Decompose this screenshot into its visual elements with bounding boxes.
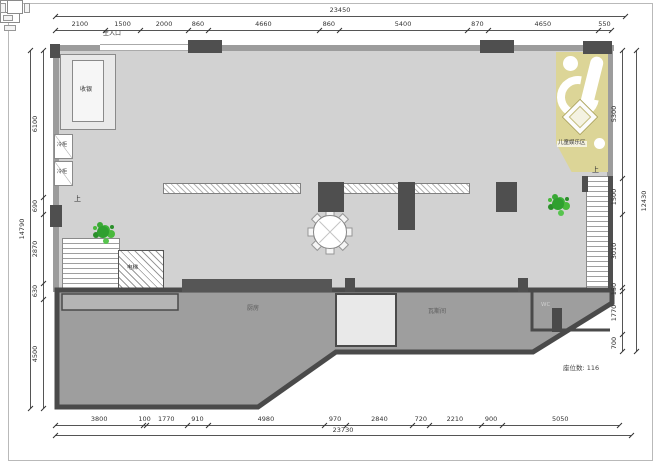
partition-wall bbox=[398, 182, 415, 230]
dimension-label: 3800 bbox=[91, 416, 108, 423]
dimension-label: 1500 bbox=[114, 21, 131, 28]
dimension-label: 3010 bbox=[611, 243, 618, 260]
generated-layer: 2100150020008604660860540087046505502345… bbox=[0, 0, 660, 464]
dimension-total-label: 12430 bbox=[641, 190, 648, 211]
dimension-label: 4650 bbox=[535, 21, 552, 28]
dimension-tick bbox=[629, 432, 635, 438]
dining-table-unit bbox=[0, 62, 20, 93]
dimension-total-label: 23450 bbox=[330, 7, 351, 14]
dining-table-unit bbox=[0, 93, 20, 124]
dimension-label: 970 bbox=[329, 416, 341, 423]
column bbox=[480, 40, 514, 53]
dimension-total-label: 23730 bbox=[333, 427, 354, 434]
dining-table-unit bbox=[0, 31, 20, 62]
dimension-label: 2870 bbox=[32, 241, 39, 258]
dimension-label: 700 bbox=[611, 336, 618, 348]
dimension-label: 150 bbox=[611, 283, 618, 295]
dimension-label: 910 bbox=[191, 416, 203, 423]
dimension-label: 720 bbox=[415, 416, 427, 423]
dimension-tick bbox=[634, 348, 640, 354]
dimension-label: 690 bbox=[32, 200, 39, 212]
column bbox=[583, 41, 612, 54]
chair bbox=[3, 15, 13, 21]
chair bbox=[4, 25, 16, 31]
dimension-tick bbox=[623, 13, 629, 19]
dining-table-unit bbox=[0, 279, 20, 310]
dimension-tick bbox=[617, 422, 623, 428]
dimension-tick bbox=[620, 348, 626, 354]
floor-plan-sheet: 收银 冷柜 冷柜 儿童娱乐区 电梯 上 上 厨房 瓦斯间 WC 主入口 座位数:… bbox=[0, 0, 660, 464]
dining-table-unit bbox=[0, 155, 20, 186]
dimension-label: 6100 bbox=[32, 116, 39, 133]
dimension-line bbox=[636, 50, 637, 351]
dimension-label: 900 bbox=[485, 416, 497, 423]
dining-table-unit bbox=[0, 248, 20, 279]
dimension-label: 870 bbox=[471, 21, 483, 28]
dimension-line bbox=[622, 50, 623, 351]
dimension-label: 860 bbox=[192, 21, 204, 28]
dining-table-unit bbox=[0, 341, 20, 372]
dimension-label: 630 bbox=[32, 285, 39, 297]
chair bbox=[24, 3, 30, 13]
chair bbox=[0, 3, 6, 13]
dimension-label: 4500 bbox=[32, 345, 39, 362]
dimension-label: 2840 bbox=[371, 416, 388, 423]
dimension-label: 1770 bbox=[611, 304, 618, 321]
dimension-line bbox=[55, 16, 625, 17]
dimension-label: 860 bbox=[323, 21, 335, 28]
partition-wall bbox=[318, 182, 344, 212]
dimension-label: 2000 bbox=[156, 21, 173, 28]
dimension-label: 550 bbox=[598, 21, 610, 28]
dimension-tick bbox=[609, 27, 615, 33]
dimension-label: 1500 bbox=[611, 188, 618, 205]
dimension-line bbox=[55, 435, 631, 436]
dimension-label: 5400 bbox=[395, 21, 412, 28]
column bbox=[188, 40, 222, 53]
dining-table-unit bbox=[0, 310, 20, 341]
dimension-total-label: 14790 bbox=[19, 219, 26, 240]
round-table-unit bbox=[0, 372, 46, 418]
dimension-line bbox=[43, 50, 44, 408]
dimension-label: 5050 bbox=[552, 416, 569, 423]
dimension-label: 100 bbox=[138, 416, 150, 423]
dimension-label: 1770 bbox=[158, 416, 175, 423]
dining-table-unit bbox=[0, 124, 20, 155]
dimension-label: 4660 bbox=[255, 21, 272, 28]
partition-wall bbox=[496, 182, 517, 212]
dimension-label: 5300 bbox=[611, 106, 618, 123]
booth-bench bbox=[163, 183, 301, 194]
table bbox=[7, 0, 23, 14]
round-table-unit bbox=[0, 418, 46, 464]
dimension-label: 2210 bbox=[447, 416, 464, 423]
dimension-label: 2100 bbox=[72, 21, 89, 28]
dimension-label: 4980 bbox=[258, 416, 275, 423]
dining-table-unit bbox=[0, 186, 20, 217]
dimension-line bbox=[30, 50, 31, 408]
